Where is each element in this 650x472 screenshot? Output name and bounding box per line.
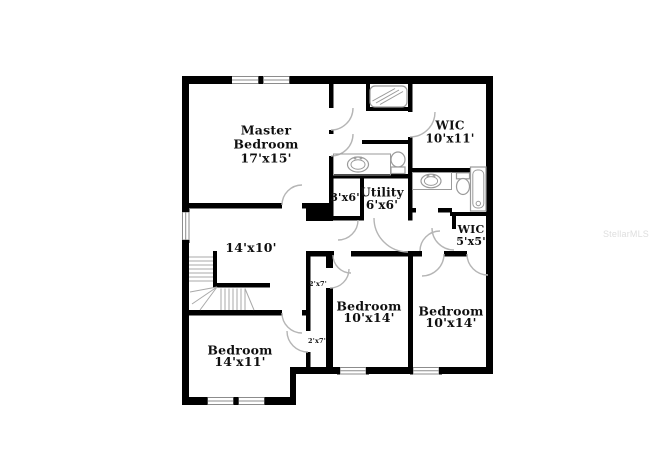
- door-arc: [338, 220, 358, 240]
- wall-segment: [329, 216, 364, 221]
- master-bedroom-dims: 17'x15': [240, 151, 291, 166]
- door-arc: [374, 218, 408, 252]
- window-cap: [182, 240, 190, 243]
- window-cap: [366, 367, 369, 375]
- stair-winder: [200, 287, 217, 310]
- wall-segment: [329, 84, 334, 108]
- wall-segment: [487, 251, 490, 257]
- wall-segment: [450, 212, 490, 216]
- door-arc: [331, 134, 353, 156]
- window-cap: [265, 397, 268, 405]
- toilet-fixture: [391, 152, 405, 174]
- wall-mass: [306, 203, 333, 221]
- door-arc: [282, 313, 302, 333]
- window-cap: [182, 209, 190, 212]
- wall-segment: [326, 288, 333, 371]
- floor-plan-drawing: Master Bedroom 17'x15' WIC 10'x11' 3'x6'…: [0, 0, 650, 472]
- bedroom-right-dims: 10'x14': [425, 315, 476, 330]
- closet-lower-dims: 2'x7': [308, 337, 326, 345]
- window-cap: [259, 76, 264, 84]
- wall-segment: [438, 208, 452, 213]
- window-cap: [337, 367, 340, 375]
- toilet-bowl: [457, 179, 470, 195]
- wall-segment: [185, 310, 282, 316]
- window-cap: [234, 397, 239, 405]
- window-cap: [290, 76, 293, 84]
- wall-segment: [408, 84, 413, 112]
- master-bedroom-label: Master: [241, 123, 292, 138]
- wall-segment: [452, 216, 456, 229]
- room-labels: Master Bedroom 17'x15' WIC 10'x11' 3'x6'…: [207, 119, 485, 370]
- vanity-sink-fixture: [334, 154, 391, 175]
- wall-segment: [362, 140, 410, 144]
- toilet-fixture: [457, 173, 470, 195]
- landing-dims: 14'x10': [225, 240, 276, 255]
- toilet-tank: [391, 167, 405, 174]
- door-arc: [422, 254, 444, 276]
- wall-segment: [290, 367, 493, 374]
- shower-fixture: [370, 86, 407, 107]
- wall-segment: [213, 251, 217, 285]
- bedroom-left-dims: 14'x11': [214, 354, 265, 369]
- wall-segment: [329, 156, 334, 218]
- window-cap: [410, 367, 413, 375]
- wall-segment: [306, 251, 311, 331]
- wall-segment: [182, 76, 493, 84]
- bathtub-fixture: [471, 167, 487, 211]
- closet-upper-dims: 2'x7': [309, 280, 327, 288]
- floor-plan-image: Master Bedroom 17'x15' WIC 10'x11' 3'x6'…: [0, 0, 650, 472]
- wall-segment: [213, 283, 270, 288]
- wall-segment: [306, 352, 311, 371]
- wall-segment: [408, 137, 413, 221]
- door-arc: [282, 185, 302, 205]
- master-bedroom-label: Bedroom: [233, 137, 298, 152]
- toilet-bowl: [391, 152, 405, 167]
- watermark-text: StellarMLS: [603, 229, 649, 239]
- wall-segment: [185, 203, 282, 209]
- window-cap: [205, 397, 208, 405]
- wall-segment: [486, 76, 493, 374]
- wall-segment: [302, 310, 308, 316]
- window-cap: [229, 76, 232, 84]
- wic-top-label: WIC: [434, 119, 464, 133]
- stair-winder: [245, 289, 254, 311]
- door-arc: [287, 331, 308, 352]
- door-arc: [331, 108, 353, 130]
- wic-small-dims: 5'x5': [456, 235, 486, 248]
- closet-3x6-dims: 3'x6': [330, 191, 360, 204]
- vanity-sink-fixture: [413, 173, 452, 190]
- wall-segment: [444, 251, 467, 257]
- window-cap: [439, 367, 442, 375]
- wall-segment: [408, 251, 413, 367]
- wic-top-dims: 10'x11': [425, 132, 474, 146]
- wall-segment: [326, 251, 333, 268]
- door-arc: [467, 254, 488, 275]
- utility-dims: 6'x6': [366, 198, 398, 212]
- wall-segment: [351, 251, 408, 257]
- wall-segment: [413, 208, 417, 213]
- bedroom-middle-dims: 10'x14': [343, 310, 394, 325]
